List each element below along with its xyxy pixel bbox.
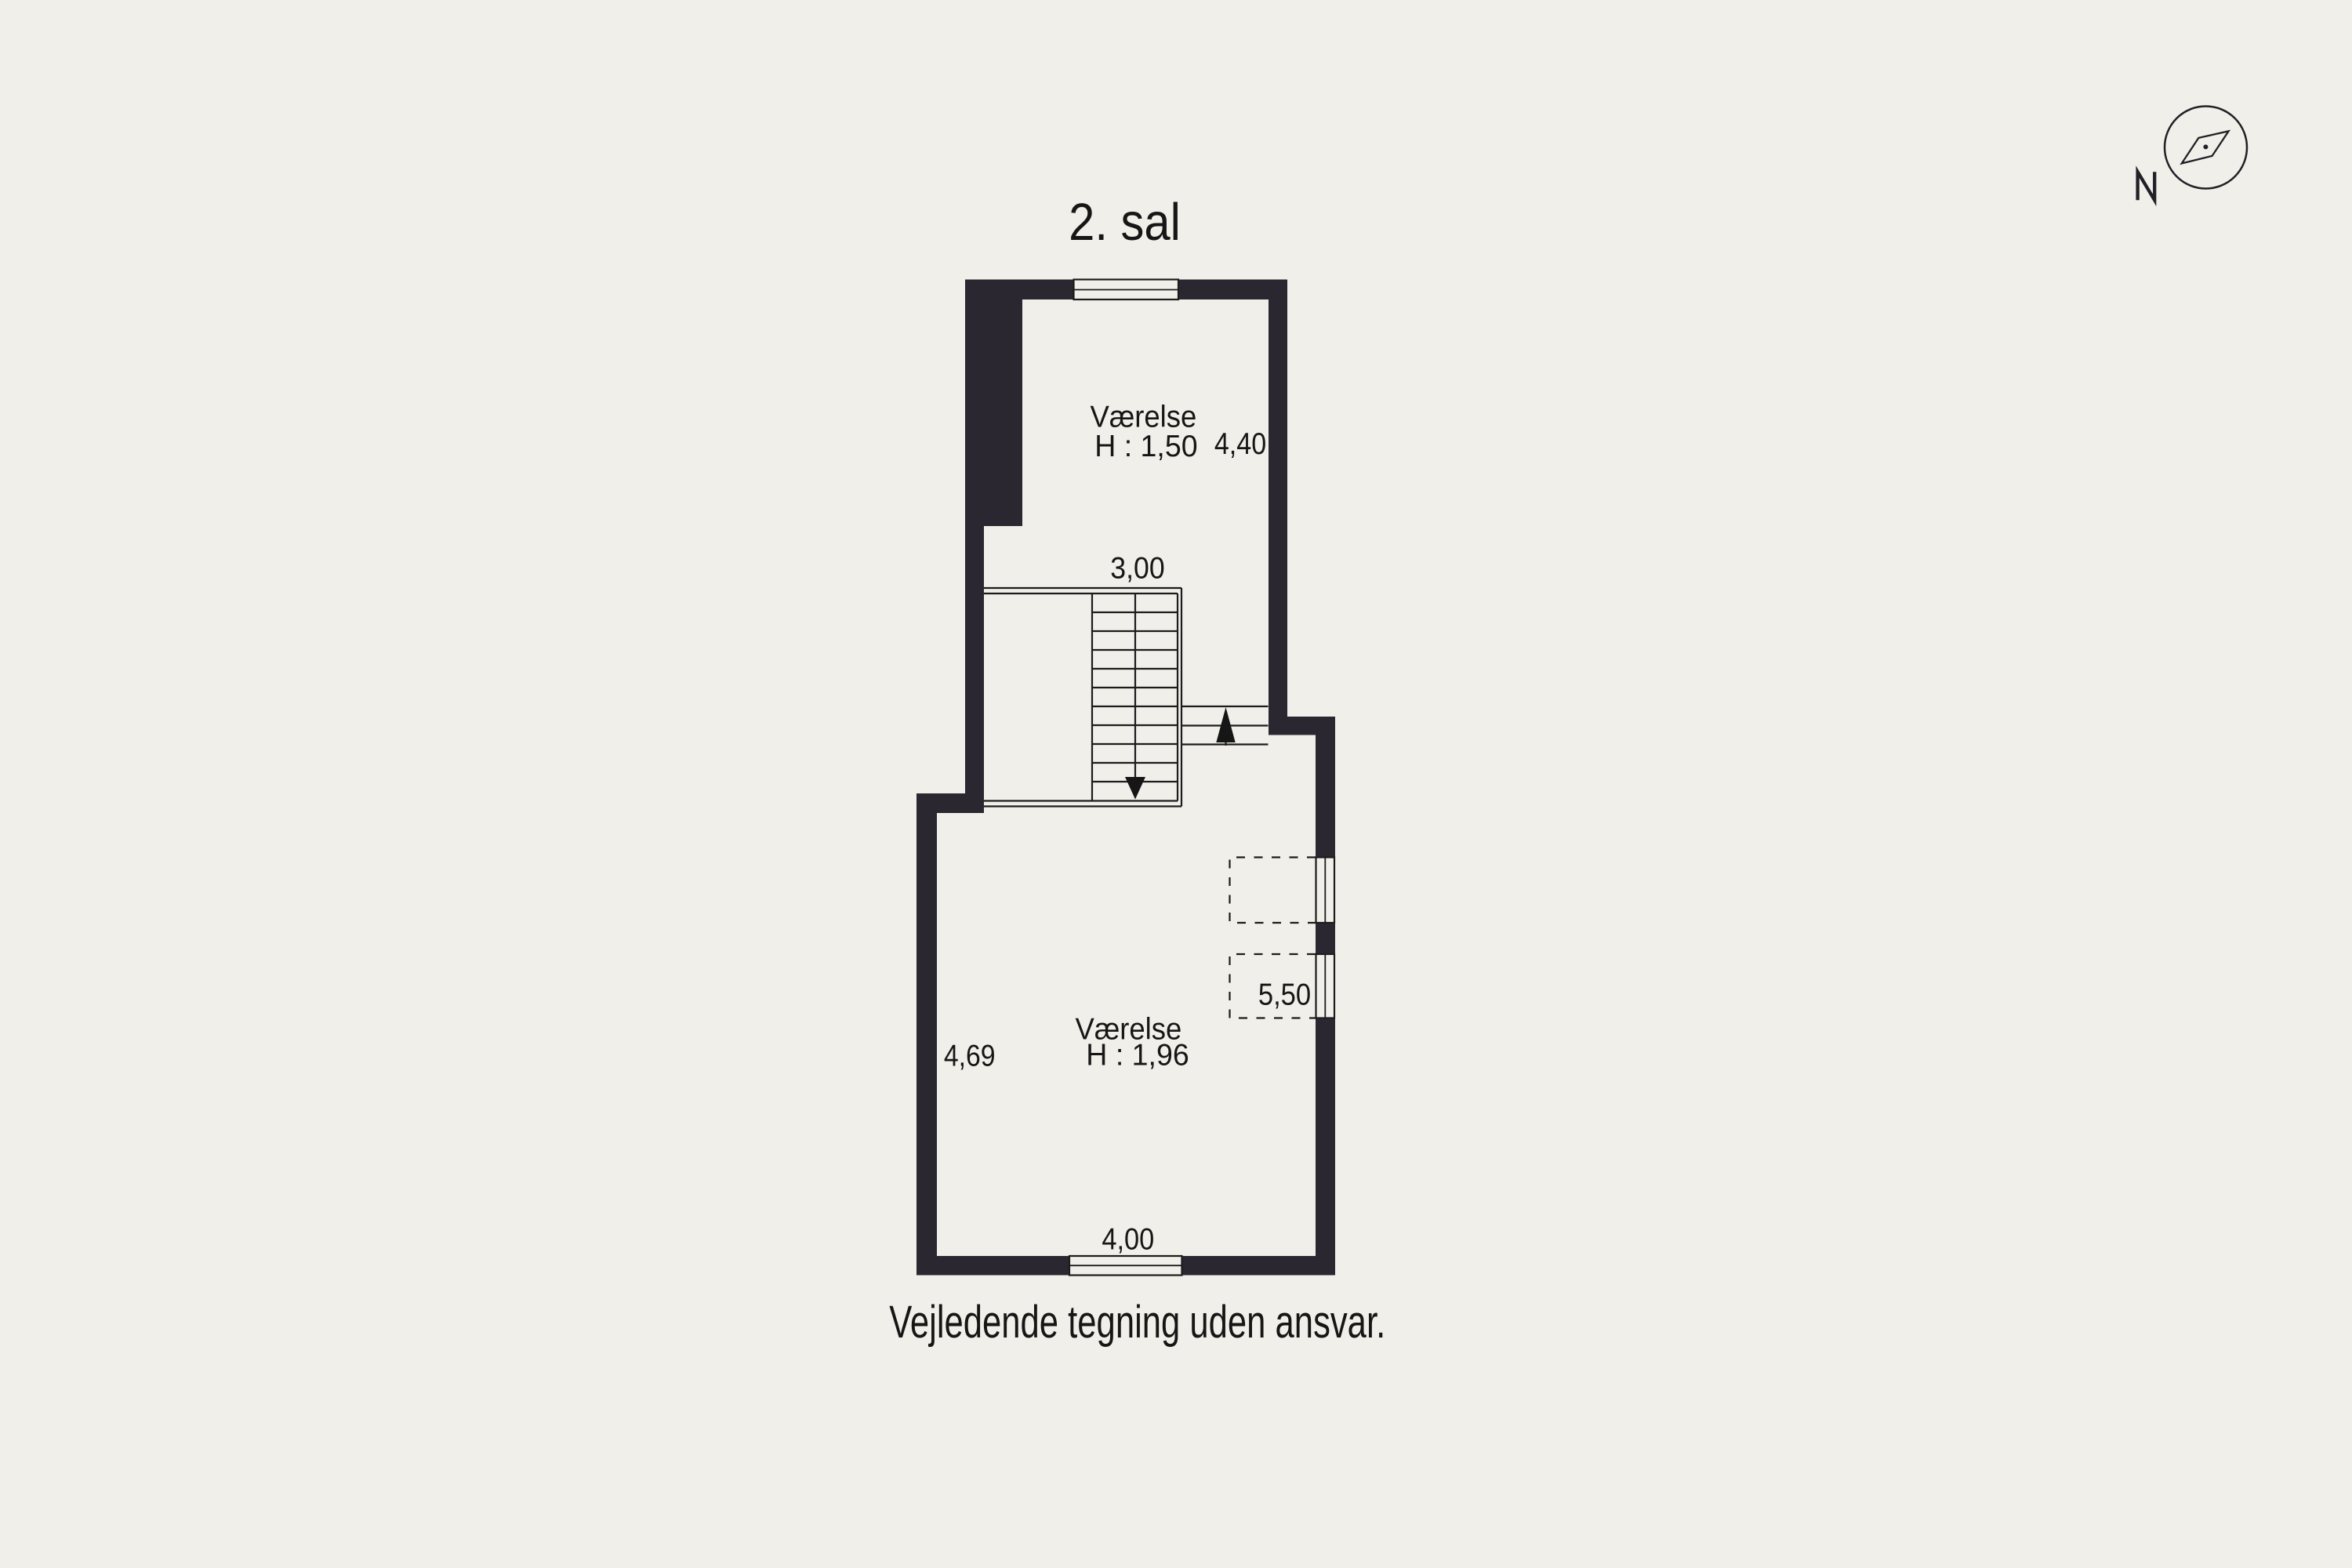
svg-text:2. sal: 2. sal <box>1069 193 1181 252</box>
svg-text:H : 1,50: H : 1,50 <box>1094 430 1197 463</box>
svg-text:Værelse: Værelse <box>1091 400 1197 434</box>
svg-text:3,00: 3,00 <box>1110 552 1164 586</box>
svg-text:4,00: 4,00 <box>1102 1222 1154 1256</box>
svg-text:H : 1,96: H : 1,96 <box>1086 1038 1189 1072</box>
svg-text:4,40: 4,40 <box>1214 427 1266 461</box>
svg-text:4,69: 4,69 <box>944 1040 996 1073</box>
svg-text:Vejledende tegning uden ansvar: Vejledende tegning uden ansvar. <box>889 1297 1385 1348</box>
svg-text:5,50: 5,50 <box>1258 978 1311 1012</box>
